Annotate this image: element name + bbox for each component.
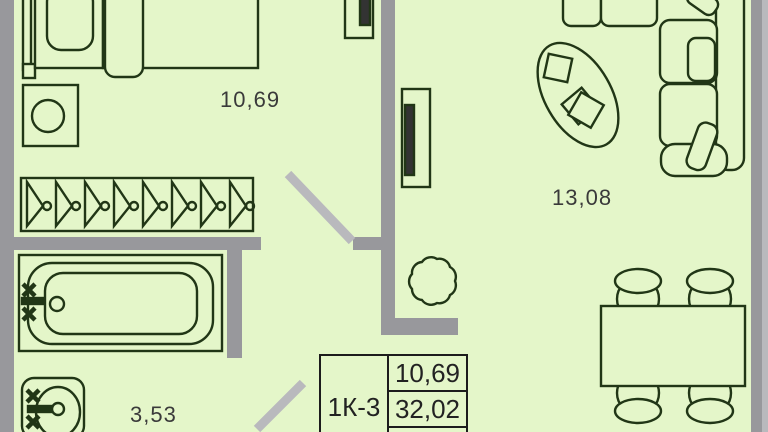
legend-area-row2: 32,02: [389, 392, 466, 428]
radiator-living-icon: [402, 89, 430, 187]
door-leaf-bedroom: [288, 174, 352, 241]
radiator-bedroom-icon: [345, 0, 373, 38]
legend-unit-type: 1К-3: [321, 392, 387, 423]
plant-icon: [409, 257, 456, 304]
bathtub: [19, 255, 222, 351]
wardrobe-hangers: [21, 178, 254, 231]
living-area-label: 13,08: [552, 185, 612, 211]
bed: [23, 0, 258, 78]
dining-table: [601, 306, 745, 386]
bathroom-area-label: 3,53: [130, 402, 177, 428]
washing-machine: [23, 85, 78, 146]
legend-table: 1К-3 10,69 32,02: [319, 354, 468, 432]
floor-plan: 10,69 13,08 3,53 1К-3 10,69 32,02: [0, 0, 768, 432]
coffee-table: [521, 29, 635, 161]
sink: [22, 378, 84, 432]
bedroom-area-label: 10,69: [220, 87, 280, 113]
legend-area-row1: 10,69: [389, 356, 466, 392]
door-leaf-bathroom: [257, 383, 303, 429]
